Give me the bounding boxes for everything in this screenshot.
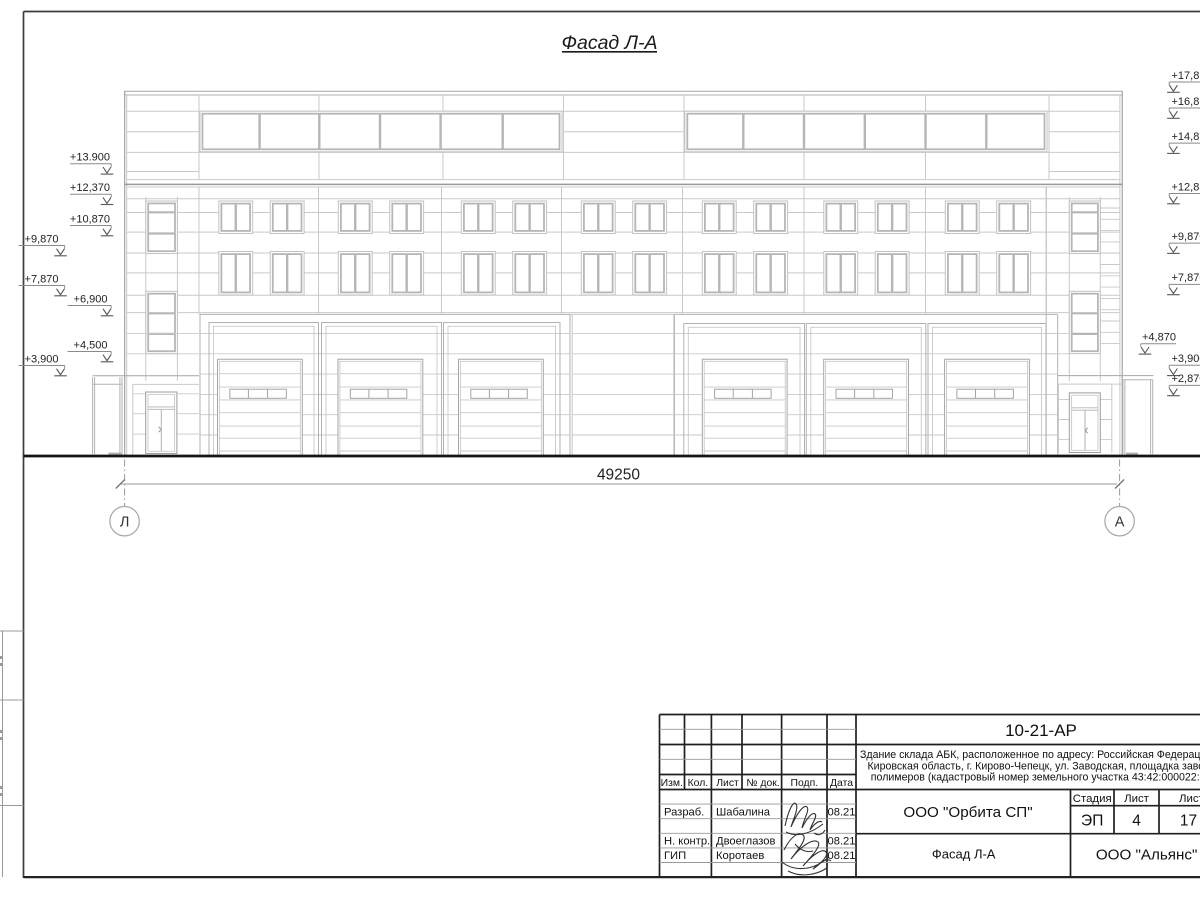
svg-text:Лист: Лист — [1124, 793, 1150, 805]
svg-text:10-21-АР: 10-21-АР — [1005, 721, 1077, 740]
svg-text:А: А — [1115, 514, 1125, 530]
svg-text:+14,870: +14,870 — [1172, 131, 1200, 143]
svg-text:полимеров (кадастровый номер з: полимеров (кадастровый номер земельного … — [871, 772, 1200, 784]
svg-text:+6,900: +6,900 — [74, 293, 108, 305]
svg-text:Стадия: Стадия — [1073, 793, 1112, 805]
svg-text:+13.900: +13.900 — [70, 152, 110, 164]
svg-text:Н. контр.: Н. контр. — [664, 836, 710, 848]
svg-text:Фасад Л-А: Фасад Л-А — [932, 847, 996, 862]
svg-text:Лист: Лист — [716, 778, 739, 789]
svg-text:+16,870: +16,870 — [1172, 96, 1200, 108]
svg-text:Кол.: Кол. — [688, 778, 709, 789]
svg-text:Здание склада АБК, расположенн: Здание склада АБК, расположенное по адре… — [860, 749, 1200, 761]
svg-text:Коротаев: Коротаев — [716, 850, 764, 862]
svg-text:+9,870: +9,870 — [25, 233, 59, 245]
svg-text:+4,500: +4,500 — [74, 339, 108, 351]
svg-text:08.21: 08.21 — [828, 836, 856, 848]
svg-text:+3,900: +3,900 — [1172, 353, 1200, 365]
svg-text:+7,870: +7,870 — [1172, 272, 1200, 284]
svg-text:Шабалина: Шабалина — [716, 806, 771, 818]
svg-text:08.21: 08.21 — [828, 806, 856, 818]
svg-text:+7,870: +7,870 — [25, 273, 59, 285]
svg-text:Подп.: Подп. — [790, 778, 818, 789]
svg-text:ГИП: ГИП — [664, 850, 686, 862]
svg-text:08.21: 08.21 — [828, 850, 856, 862]
svg-text:Двоеглазов: Двоеглазов — [716, 836, 776, 848]
svg-text:ООО "Орбита СП": ООО "Орбита СП" — [903, 804, 1032, 821]
svg-text:+9,870: +9,870 — [1172, 231, 1200, 243]
svg-text:+12,370: +12,370 — [70, 182, 110, 194]
svg-text:ЭП: ЭП — [1081, 813, 1103, 830]
svg-text:Фасад Л-А: Фасад Л-А — [561, 32, 657, 54]
svg-text:+12,870: +12,870 — [1172, 181, 1200, 193]
svg-text:+2,870: +2,870 — [1172, 373, 1200, 385]
svg-text:Разраб.: Разраб. — [664, 806, 704, 818]
svg-text:+17,870: +17,870 — [1172, 70, 1200, 82]
svg-text:Кировская область, г. Кирово-Ч: Кировская область, г. Кирово-Чепецк, ул.… — [868, 760, 1200, 772]
svg-text:+10,870: +10,870 — [70, 213, 110, 225]
svg-text:ООО "Альянс": ООО "Альянс" — [1096, 847, 1198, 864]
svg-text:Изм.: Изм. — [661, 778, 683, 789]
svg-text:Листов: Листов — [1179, 793, 1200, 805]
svg-text:49250: 49250 — [597, 467, 640, 484]
svg-text:+4,870: +4,870 — [1142, 332, 1176, 344]
svg-text:Дата: Дата — [830, 778, 853, 789]
svg-text:4: 4 — [1132, 813, 1141, 830]
svg-text:+3,900: +3,900 — [25, 353, 59, 365]
svg-text:17: 17 — [1180, 813, 1197, 830]
svg-text:№ док.: № док. — [746, 778, 779, 789]
svg-text:Л: Л — [120, 514, 130, 530]
